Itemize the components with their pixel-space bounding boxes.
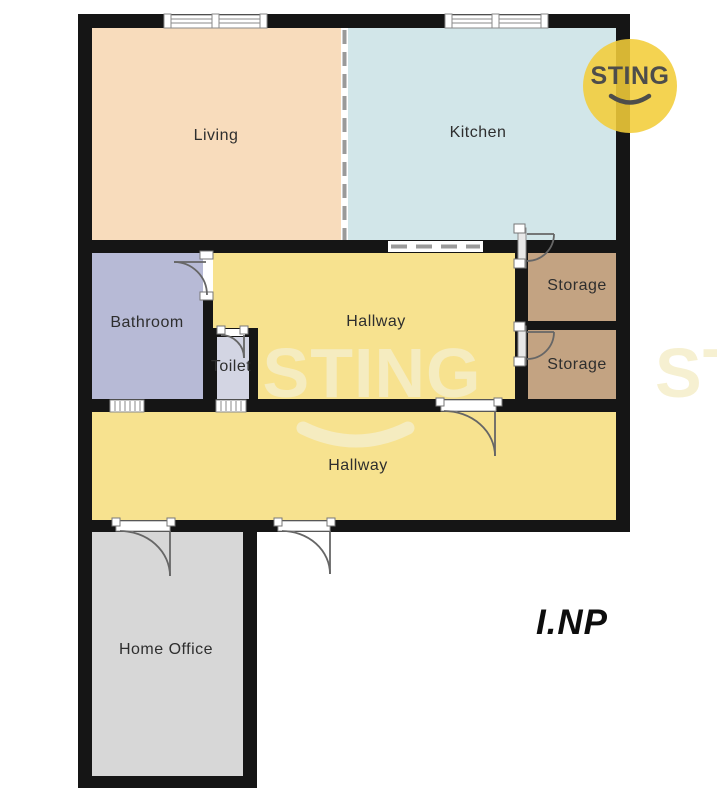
door-jamb [514, 259, 525, 268]
room-label-hallway-middle: Hallway [346, 313, 406, 331]
window-tick [445, 14, 452, 28]
door-opening [203, 258, 213, 295]
window-tick [164, 14, 171, 28]
door-opening [278, 521, 330, 531]
room-label-hallway-lower: Hallway [328, 457, 388, 475]
door-jamb [112, 518, 120, 526]
room-label-living: Living [194, 127, 239, 145]
wall-between-storages [528, 321, 630, 330]
room-label-toilet: Toilet [211, 358, 251, 376]
door-opening [441, 400, 496, 411]
door-jamb [494, 398, 502, 406]
window-tick [541, 14, 548, 28]
opening-kitchen-hallway [388, 241, 483, 252]
door-opening [116, 521, 170, 531]
room-label-home-office: Home Office [119, 641, 213, 659]
door-jamb [514, 224, 525, 233]
door-jamb [514, 322, 525, 331]
window-tick [212, 14, 219, 28]
floor-label: I.NP [536, 603, 608, 643]
door-jamb [200, 251, 213, 259]
door-entrance [274, 518, 335, 574]
room-label-kitchen: Kitchen [450, 124, 507, 142]
room-label-storage-1: Storage [547, 277, 607, 295]
door-jamb [327, 518, 335, 526]
door-swing-arc [282, 531, 330, 574]
door-jamb [436, 398, 444, 406]
partition-living-kitchen [341, 28, 348, 240]
room-label-storage-2: Storage [547, 356, 607, 374]
wall-home-office-bottom [78, 776, 257, 788]
sting-logo-text: STING [591, 64, 670, 89]
floor-plan-page: STING STING [0, 0, 717, 799]
door-jamb [514, 357, 525, 366]
window-tick [260, 14, 267, 28]
door-jamb [274, 518, 282, 526]
door-jamb [167, 518, 175, 526]
window-tick [492, 14, 499, 28]
vent-toilet [216, 400, 246, 412]
sting-logo: STING [583, 39, 677, 133]
window-living [164, 14, 267, 28]
wall-home-office-right [243, 532, 257, 788]
logo-smile-icon [607, 93, 653, 109]
watermark-text-tiled: STING [655, 334, 717, 412]
door-jamb [217, 326, 225, 334]
window-kitchen [445, 14, 548, 28]
wall-hallway-divider [78, 399, 630, 412]
door-jamb [240, 326, 248, 334]
room-label-bathroom: Bathroom [110, 314, 183, 332]
vent-bathroom [110, 400, 144, 412]
